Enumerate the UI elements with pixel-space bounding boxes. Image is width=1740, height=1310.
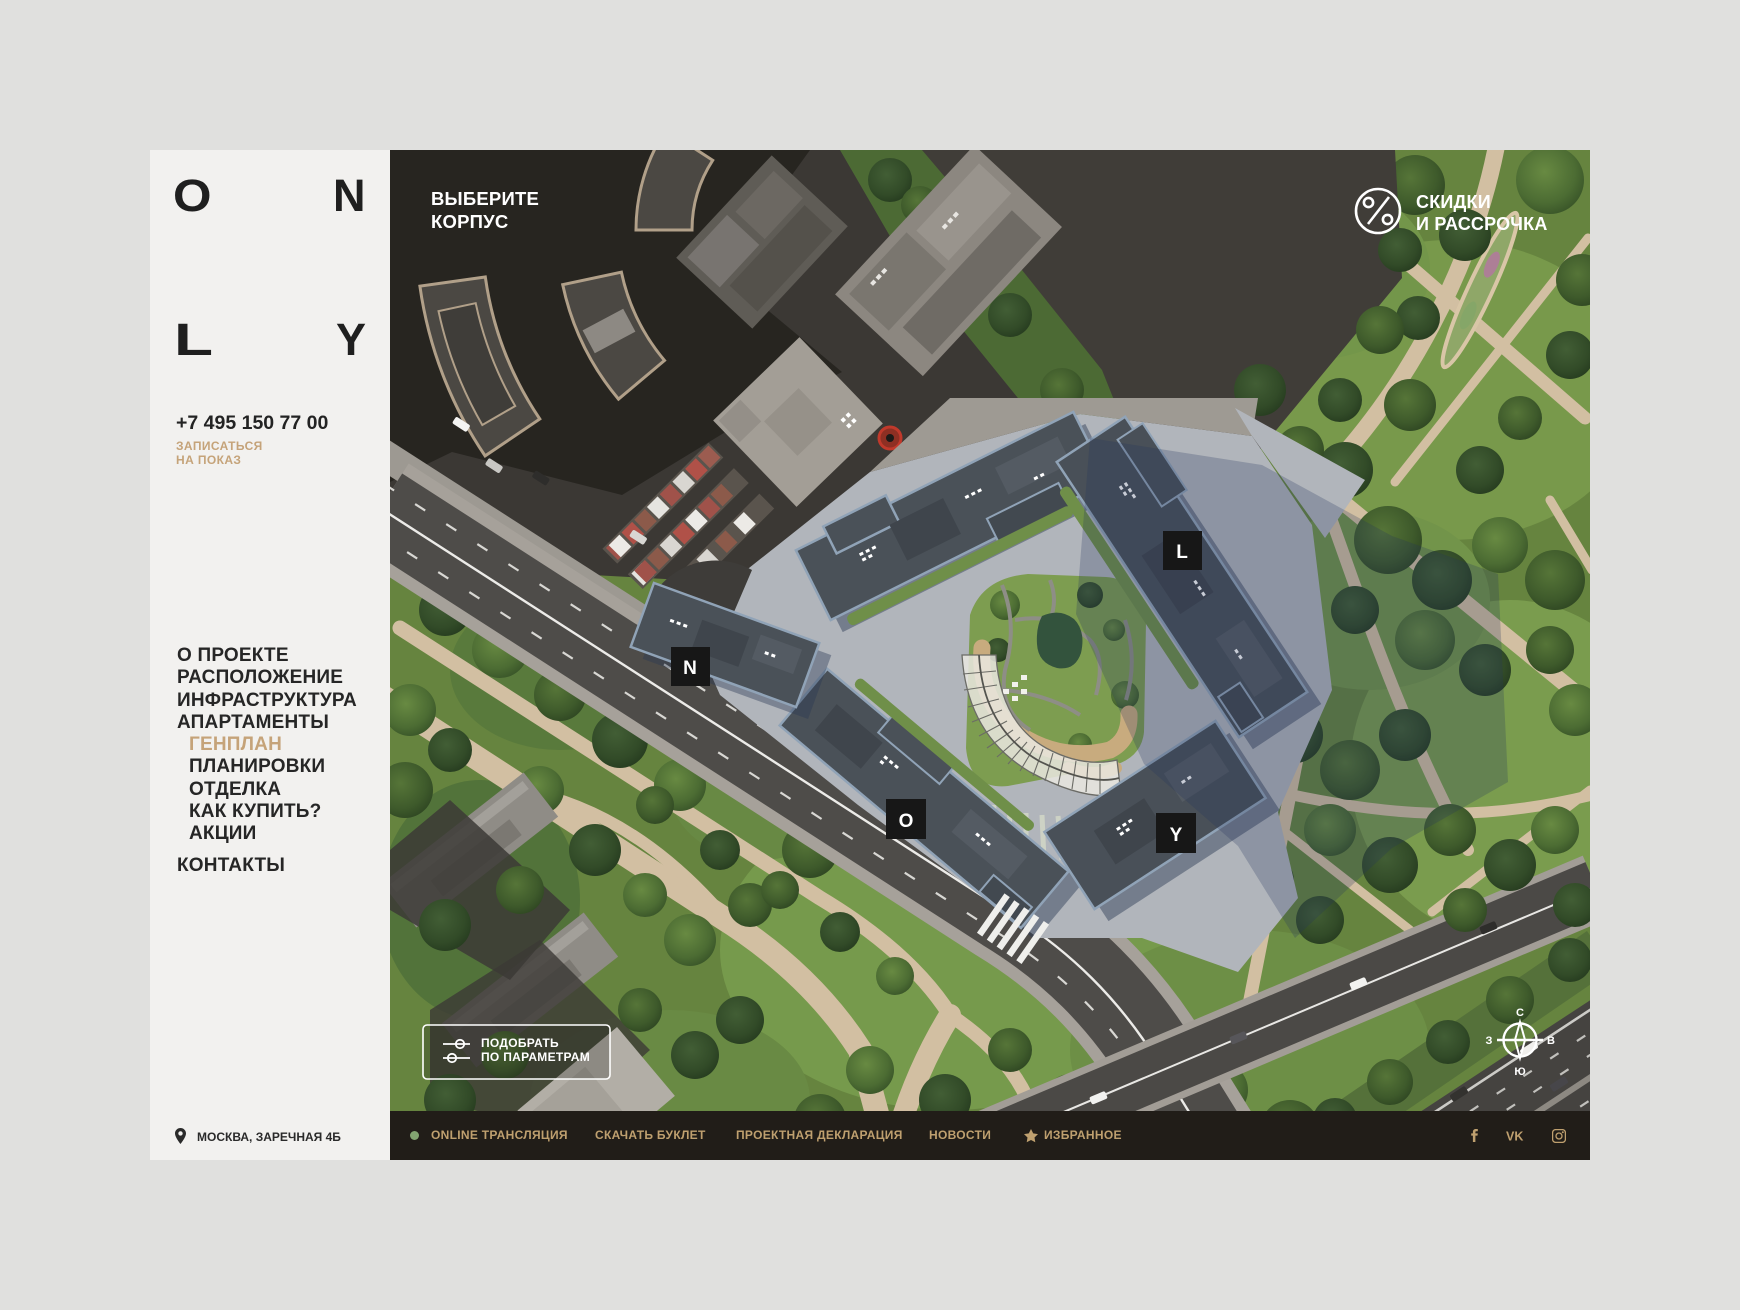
svg-text:СКИДКИ: СКИДКИ <box>1416 192 1491 212</box>
svg-text:VK: VK <box>1506 1130 1523 1142</box>
svg-text:L: L <box>1176 542 1188 563</box>
svg-text:ВЫБЕРИТЕ: ВЫБЕРИТЕ <box>431 188 539 209</box>
svg-text:И РАССРОЧКА: И РАССРОЧКА <box>1416 214 1548 234</box>
svg-text:С: С <box>1516 1007 1524 1019</box>
svg-text:ПО ПАРАМЕТРАМ: ПО ПАРАМЕТРАМ <box>481 1050 590 1064</box>
svg-text:З: З <box>1486 1035 1493 1047</box>
svg-text:Ю: Ю <box>1514 1066 1525 1078</box>
svg-text:КОРПУС: КОРПУС <box>431 211 508 232</box>
svg-text:Y: Y <box>1170 825 1183 846</box>
svg-text:O: O <box>899 811 914 832</box>
svg-text:ПОДОБРАТЬ: ПОДОБРАТЬ <box>481 1036 559 1050</box>
svg-text:N: N <box>683 658 697 679</box>
svg-text:В: В <box>1547 1035 1555 1047</box>
